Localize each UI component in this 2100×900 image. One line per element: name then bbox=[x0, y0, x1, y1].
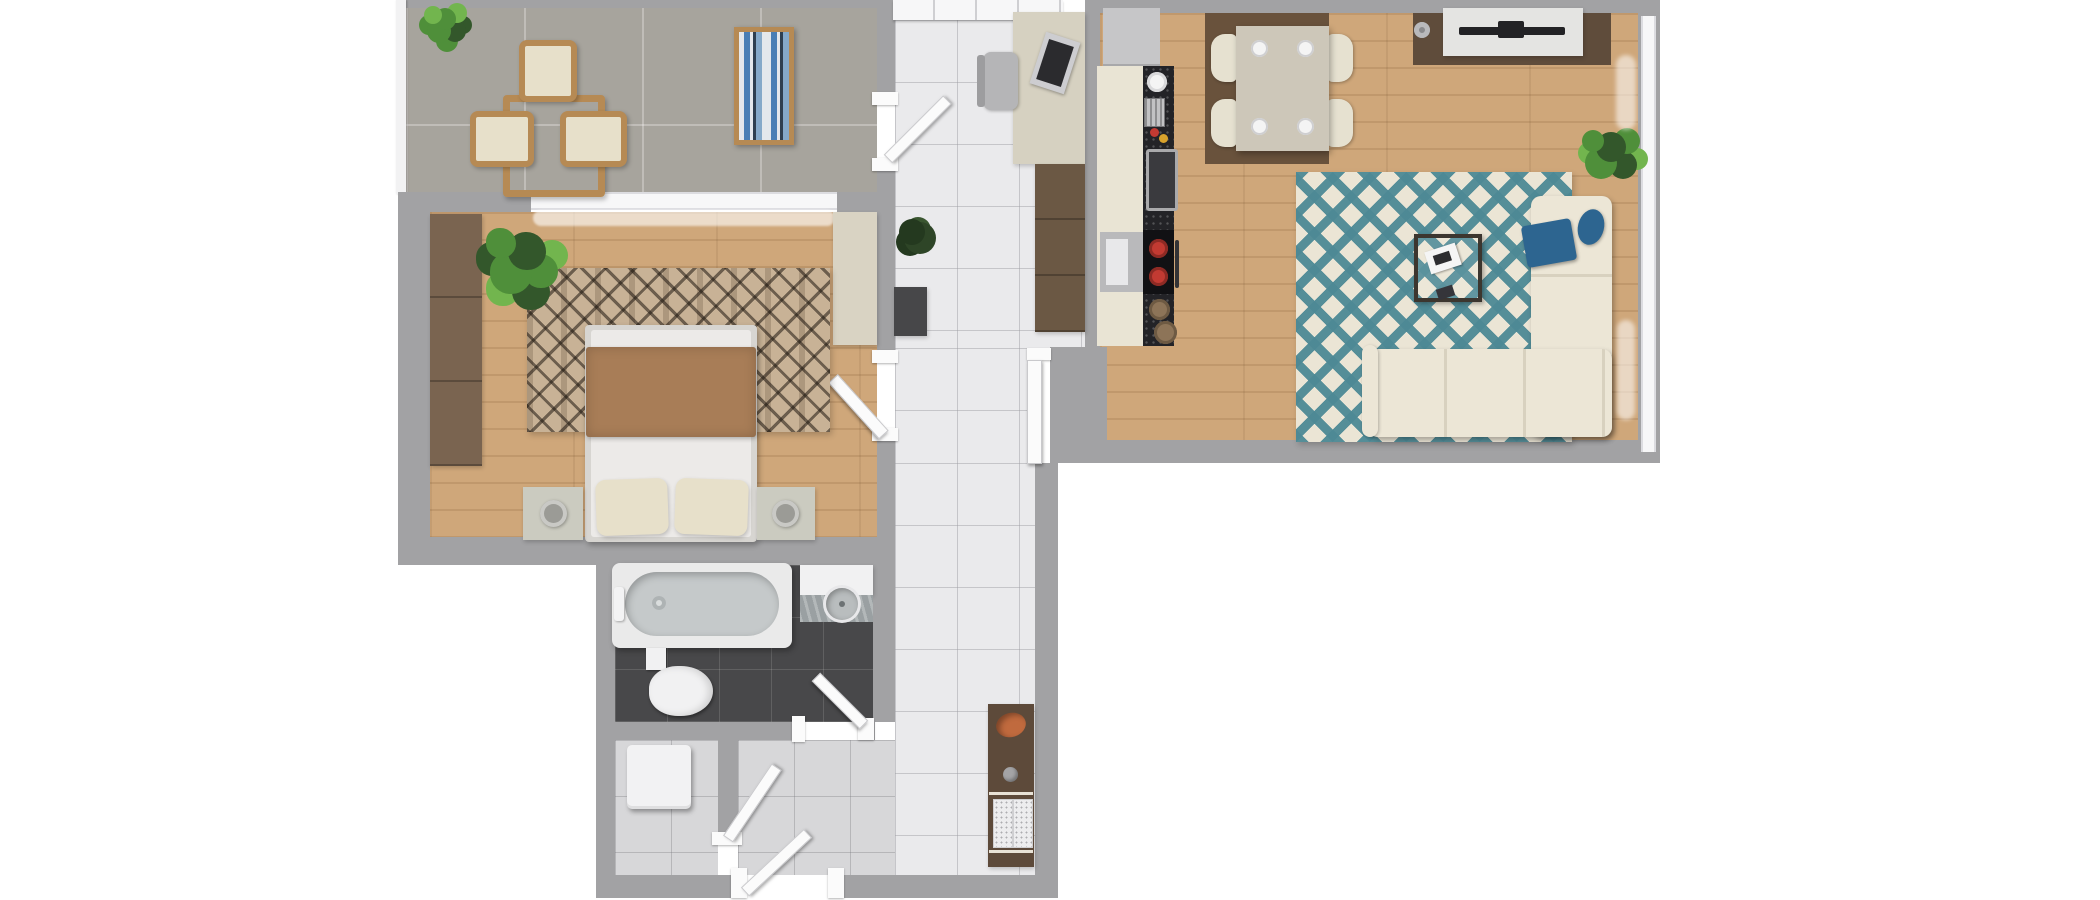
dish-rack-icon bbox=[1144, 98, 1165, 127]
entrance-jamb-right bbox=[828, 868, 844, 898]
wall-living-door-pier bbox=[1050, 347, 1107, 440]
office-chair bbox=[983, 52, 1018, 110]
pot-bottom-icon bbox=[1149, 267, 1168, 286]
console-divider-bottom bbox=[989, 850, 1033, 853]
wall-bathroom-bottom-left bbox=[596, 722, 800, 740]
fruit-red-icon bbox=[1150, 128, 1159, 137]
curtain-wisp-top bbox=[1616, 55, 1636, 130]
wall-bedroom-top-right bbox=[837, 192, 877, 212]
bench-cushion-right bbox=[1013, 799, 1033, 848]
sofa-armrest bbox=[1362, 345, 1378, 437]
balcony-chair-southwest bbox=[470, 111, 534, 167]
sun-lounger bbox=[734, 27, 794, 145]
hallway-floor-mid bbox=[895, 348, 1027, 463]
balcony-railing bbox=[396, 0, 406, 194]
sofa-bottom-section bbox=[1368, 349, 1612, 437]
office-chair-back bbox=[977, 55, 985, 107]
wall-living-bottom bbox=[1050, 440, 1660, 463]
wall-bottom-left bbox=[596, 875, 745, 898]
magazine-print bbox=[1433, 251, 1452, 266]
plate-icon bbox=[1147, 72, 1167, 92]
balcony-plant-icon bbox=[424, 6, 442, 24]
kitchen-sink bbox=[1146, 149, 1178, 211]
wall-bedroom-left bbox=[398, 192, 430, 565]
dining-chair-right-bottom bbox=[1327, 99, 1353, 147]
speaker-icon bbox=[1414, 22, 1430, 38]
wall-bathroom-hall bbox=[873, 565, 895, 722]
living-door-leaf bbox=[1027, 360, 1042, 464]
hallway-floor-lower bbox=[738, 740, 895, 875]
toilet-cistern bbox=[646, 648, 666, 670]
wall-hall-left-2 bbox=[877, 171, 895, 350]
laptop-screen bbox=[1036, 39, 1074, 87]
wall-hall-left-3 bbox=[877, 441, 895, 548]
place-setting-3 bbox=[1251, 118, 1268, 135]
washbasin-drain bbox=[839, 601, 845, 607]
living-plant-icon bbox=[1582, 130, 1604, 152]
dining-chair-left-bottom bbox=[1211, 99, 1237, 147]
washbasin-icon bbox=[826, 588, 858, 620]
oven bbox=[1100, 232, 1143, 292]
balcony-chair-north bbox=[519, 40, 577, 102]
balcony-chair-southeast bbox=[560, 111, 627, 167]
entry-plant-icon bbox=[899, 219, 925, 245]
bench-cushion-left bbox=[993, 799, 1013, 848]
bedroom-closet bbox=[833, 212, 877, 345]
oven-handle bbox=[1175, 240, 1179, 288]
fridge bbox=[1103, 8, 1160, 66]
bathtub bbox=[612, 563, 792, 648]
curtain-wisp-bottom bbox=[1617, 320, 1635, 420]
entry-wardrobe bbox=[1035, 164, 1085, 332]
living-window bbox=[1641, 16, 1656, 452]
console-divider-top bbox=[989, 792, 1033, 795]
wall-bottom-right bbox=[830, 875, 1058, 898]
bowl-large-icon bbox=[1154, 321, 1177, 344]
bathtub-faucet-icon bbox=[614, 587, 624, 621]
floor-plan-scene bbox=[0, 0, 2100, 900]
blue-throw bbox=[1521, 218, 1578, 268]
table-lamp-left-icon bbox=[540, 500, 567, 527]
bathtub-basin bbox=[625, 572, 779, 636]
fruit-yellow-icon bbox=[1159, 134, 1168, 143]
bedroom-plant-icon bbox=[486, 228, 516, 258]
dining-chair-right-top bbox=[1327, 34, 1353, 82]
dining-table bbox=[1236, 26, 1329, 151]
doormat bbox=[894, 287, 927, 336]
pot-top-icon bbox=[1149, 239, 1168, 258]
bedroom-curtain bbox=[533, 210, 835, 226]
balcony-door-jamb-top bbox=[872, 92, 898, 105]
table-lamp-right-icon bbox=[772, 500, 799, 527]
decor-sphere-icon bbox=[1003, 767, 1018, 782]
bed-blanket bbox=[586, 347, 756, 437]
tv-base-icon bbox=[1498, 21, 1524, 38]
bathtub-drain-icon bbox=[652, 596, 666, 610]
bed-pillow-left bbox=[595, 478, 669, 536]
living-door-jamb bbox=[1027, 348, 1051, 360]
place-setting-4 bbox=[1297, 118, 1314, 135]
bedroom-door-jamb-top bbox=[872, 350, 898, 363]
bath-door-jamb-left bbox=[792, 716, 805, 742]
washing-machine bbox=[627, 745, 691, 809]
bowl-small-icon bbox=[1149, 299, 1170, 320]
oven-inner bbox=[1106, 239, 1128, 285]
kitchen-cabinets bbox=[1097, 66, 1143, 346]
place-setting-2 bbox=[1297, 40, 1314, 57]
wall-balcony-top bbox=[398, 0, 877, 8]
dining-chair-left-top bbox=[1211, 34, 1237, 82]
bedroom-wardrobe bbox=[430, 214, 482, 466]
wall-hall-right-bottom bbox=[1035, 463, 1058, 875]
place-setting-1 bbox=[1251, 40, 1268, 57]
bed-pillow-right bbox=[674, 478, 749, 537]
toilet-bowl bbox=[649, 666, 713, 716]
